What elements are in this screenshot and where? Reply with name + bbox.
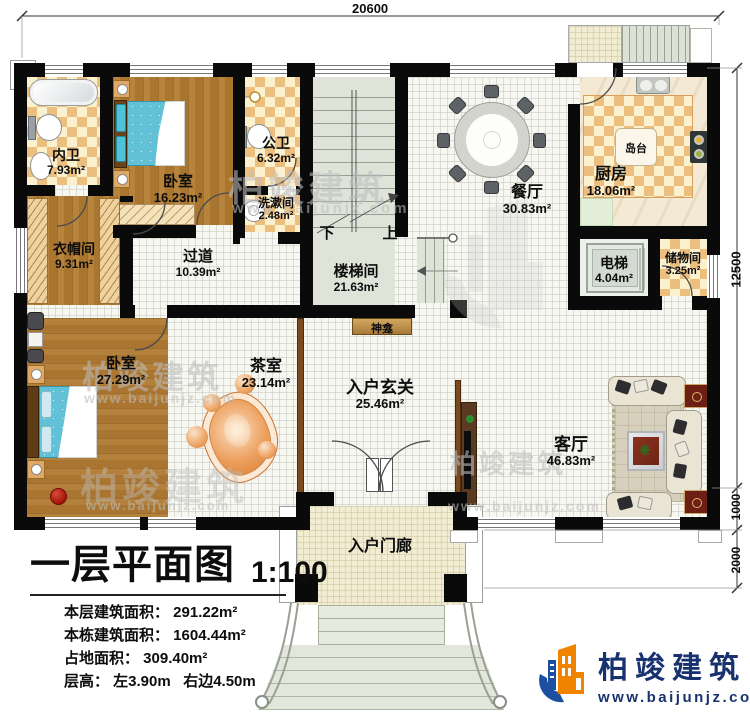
nightstand	[113, 170, 130, 188]
wall-cloak-corridor	[120, 196, 133, 202]
room-label-storage: 储物间 3.25m²	[665, 252, 701, 278]
dim-tick	[732, 63, 742, 73]
rear-landing-outline	[690, 28, 712, 63]
plant-icon: ❋	[639, 442, 651, 459]
info-line-4: 层高： 左3.90m 右边4.50m	[64, 671, 328, 694]
room-label-cloakroom: 衣帽间 9.31m²	[53, 242, 95, 271]
wall-bath-cloak	[14, 185, 55, 196]
stone-ball	[203, 394, 221, 412]
floor-plan: ❋	[0, 0, 750, 718]
info-line-1: 本层建筑面积： 291.22m²	[64, 602, 328, 625]
room-label-living: 客厅 46.83m²	[547, 435, 595, 469]
room-label-bedroom-main: 卧室 27.29m²	[97, 356, 145, 387]
cooktop	[690, 131, 708, 163]
room-label-gongwei: 公卫 6.32m²	[257, 136, 295, 165]
wall-bedtop-bottom	[113, 225, 196, 238]
nightstand	[113, 80, 130, 98]
porch-pillar	[444, 574, 467, 602]
tv-panel	[464, 431, 471, 489]
room-label-elevator: 电梯 4.04m²	[595, 256, 633, 285]
title-block: 一层平面图 1:100 本层建筑面积： 291.22m² 本栋建筑面积： 160…	[30, 532, 328, 694]
room-label-stairwell: 楼梯间 21.63m²	[333, 264, 378, 294]
window	[707, 255, 720, 298]
wall-bath-cloak	[88, 185, 113, 196]
toilet	[28, 116, 36, 140]
window	[252, 63, 287, 77]
rear-steps	[622, 25, 690, 63]
window	[603, 517, 680, 530]
room-label-tearoom: 茶室 23.14m²	[242, 358, 290, 390]
room-label-dining: 餐厅 30.83m²	[503, 184, 551, 216]
sofa-pillow	[673, 463, 687, 479]
room-label-kitchen: 厨房 18.06m²	[587, 166, 635, 198]
nightstand	[27, 365, 45, 384]
window	[623, 63, 687, 77]
wall-wash-bottom	[233, 232, 240, 244]
toilet-bowl	[36, 114, 62, 141]
wall-join	[296, 492, 310, 530]
logo-website: www.baijunjz.com	[598, 689, 750, 706]
window	[14, 228, 27, 293]
dim-right-2000: 2000	[729, 536, 743, 584]
dining-chair	[484, 181, 499, 194]
red-stool	[50, 488, 67, 505]
stone-ball	[186, 426, 208, 448]
porch-steps-upper	[318, 605, 445, 645]
dining-chair	[484, 85, 499, 98]
wall-elevator-storage	[648, 239, 660, 300]
dim-tick	[17, 11, 27, 21]
wall-hall-south	[167, 305, 415, 318]
wall-storage-bottom	[692, 296, 720, 310]
dim-top-20600: 20600	[352, 1, 388, 16]
room-label-foyer: 入户玄关 25.46m²	[346, 378, 414, 412]
wall-left	[14, 63, 27, 530]
window	[45, 517, 140, 530]
plant-dot	[466, 415, 474, 423]
room-label-neiwei: 内卫 7.93m²	[47, 148, 85, 177]
entry-door-leaf	[366, 458, 379, 492]
plan-scale: 1:100	[251, 556, 328, 590]
dim-right-1000: 1000	[729, 483, 743, 531]
stair-lower-flight	[417, 237, 445, 303]
wall-bath2-wash	[245, 186, 268, 195]
rear-landing	[568, 25, 622, 63]
window	[450, 63, 555, 77]
room-label-bedroom-top: 卧室 16.23m²	[154, 174, 202, 205]
dim-tick	[714, 11, 724, 21]
window	[45, 63, 83, 77]
wall-bed-bath2	[233, 63, 245, 238]
dining-chair	[533, 133, 546, 148]
wall-pillar	[450, 300, 467, 318]
window	[130, 63, 213, 77]
bed-pillow	[41, 391, 52, 418]
plan-title: 一层平面图	[30, 532, 235, 590]
bed-pillow	[41, 426, 52, 453]
foyer-cabinet	[461, 402, 477, 505]
window-sill	[555, 530, 603, 543]
bed-pillow	[116, 136, 126, 162]
info-line-3: 占地面积： 309.40m²	[64, 648, 328, 671]
armchair	[27, 349, 44, 363]
bench-seat	[115, 204, 195, 225]
nightstand	[27, 460, 45, 479]
stair-treads	[313, 85, 395, 232]
label-island: 岛台	[625, 140, 647, 156]
entry-door-leaf	[380, 458, 393, 492]
window	[315, 63, 390, 77]
label-stair-up: 上	[382, 222, 397, 243]
wall-kitchen-bottom	[568, 226, 720, 239]
window-sill	[450, 530, 478, 543]
label-porch: 入户门廊	[348, 532, 412, 556]
dim-right-12500: 12500	[729, 240, 744, 300]
door-gap	[577, 63, 613, 77]
bed-pillow	[116, 104, 126, 132]
armchair	[27, 312, 44, 330]
coffee-table: ❋	[627, 431, 665, 471]
sofa-pillow	[637, 496, 653, 511]
title-underline	[30, 594, 286, 596]
side-table	[684, 384, 708, 408]
room-label-xishujian: 洗漱间 2.48m²	[258, 197, 294, 223]
logo-icon	[534, 642, 588, 706]
dim-tick	[732, 583, 742, 593]
window-sill	[698, 530, 722, 543]
wall-stair-right	[395, 63, 408, 237]
dining-chair	[437, 133, 450, 148]
dining-table	[454, 102, 530, 178]
room-label-corridor: 过道 10.39m²	[176, 249, 221, 279]
wall-bath-bed	[100, 63, 113, 196]
tearoom-screen	[297, 318, 304, 505]
side-table	[684, 490, 708, 514]
wall-join	[453, 492, 467, 530]
info-line-2: 本栋建筑面积： 1604.44m²	[64, 625, 328, 648]
wall-kitchen-left	[568, 104, 580, 226]
bed-headboard	[27, 386, 39, 458]
logo-company: 柏竣建筑	[598, 643, 750, 687]
bathtub	[29, 79, 98, 106]
kitchen-sink	[636, 76, 670, 94]
window	[148, 517, 196, 530]
wall-elevator-bottom	[568, 296, 662, 310]
label-stair-down: 下	[319, 222, 334, 243]
wall-stair-left	[300, 63, 313, 318]
wardrobe	[27, 198, 48, 304]
stone-ball	[258, 441, 276, 459]
wall-hall-south	[120, 305, 135, 318]
kitchen-mat	[580, 198, 613, 226]
label-shrine: 神龛	[371, 320, 393, 336]
side-table-small	[28, 332, 43, 347]
window	[478, 517, 555, 530]
logo-block: 柏竣建筑 www.baijunjz.com	[534, 642, 750, 706]
wall-elevator-left	[568, 239, 580, 300]
wardrobe	[99, 198, 120, 304]
